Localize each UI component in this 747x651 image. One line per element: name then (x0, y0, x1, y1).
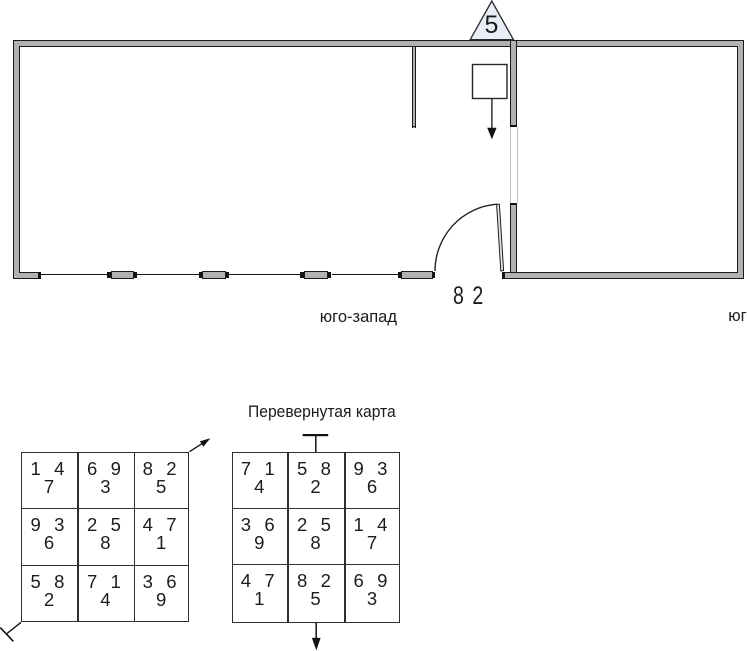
svg-text:5: 5 (485, 11, 499, 39)
